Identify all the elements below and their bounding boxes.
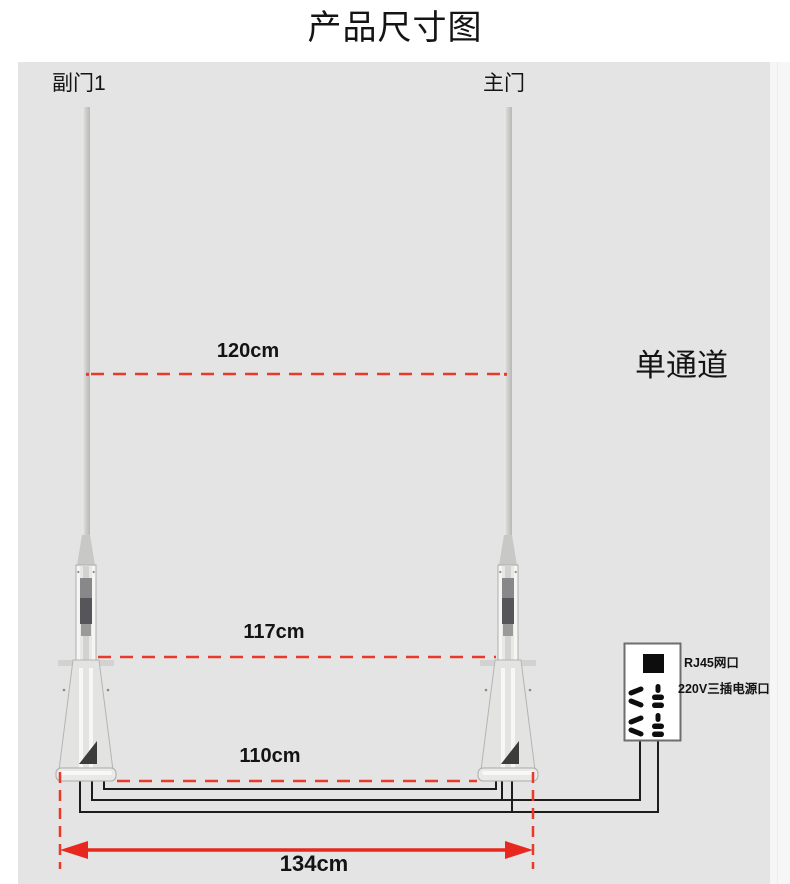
channel-type-label: 单通道	[635, 349, 728, 383]
rj45-port-icon	[643, 654, 664, 673]
right-gate-post	[478, 107, 538, 781]
page-title: 产品尺寸图	[0, 6, 790, 50]
rj45-port-label: RJ45网口	[684, 657, 739, 671]
product-dimension-diagram: 产品尺寸图 副门1 主门 单通道 120cm 117cm 110cm 134cm…	[0, 0, 790, 884]
dimension-label-middle: 117cm	[224, 621, 324, 643]
left-gate-post	[56, 107, 116, 781]
left-gate-label: 副门1	[52, 72, 106, 95]
dimension-label-overall: 134cm	[264, 852, 364, 876]
connection-wires	[80, 741, 658, 812]
diagram-graphics	[0, 0, 790, 884]
dimension-label-upper: 120cm	[198, 340, 298, 362]
outlet-panel	[625, 644, 681, 741]
power-socket-label: 220V三插电源口	[678, 683, 770, 697]
right-gate-label: 主门	[483, 72, 525, 95]
dimension-label-lower: 110cm	[220, 745, 320, 767]
